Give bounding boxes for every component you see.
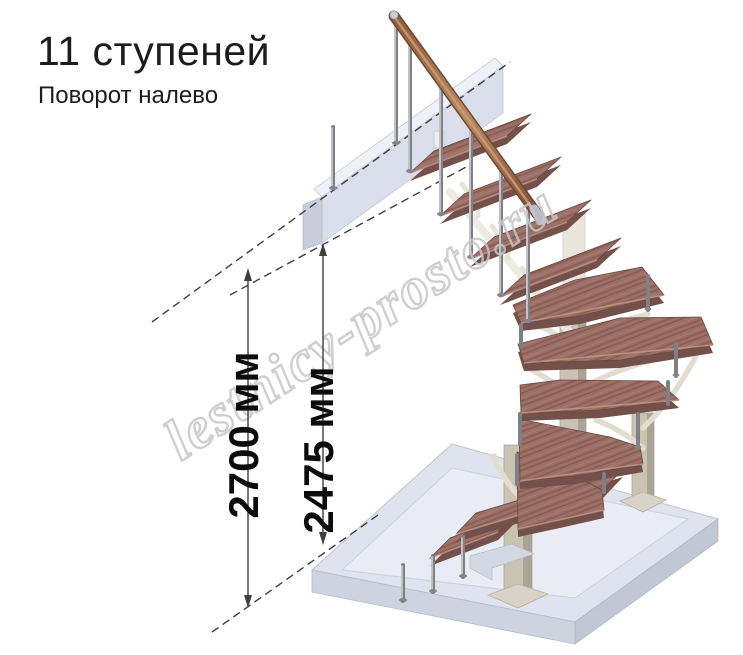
page-title: 11 ступеней — [37, 28, 270, 75]
dimension-2475: 2475 мм — [295, 243, 342, 545]
handrail-top-cap — [390, 11, 398, 19]
watermark: lestnicy-prosto.ru — [153, 171, 569, 472]
dimension-2475-label: 2475 мм — [295, 366, 342, 533]
arrowhead-up — [244, 268, 252, 281]
arrowhead-down — [244, 595, 252, 608]
staircase-diagram-page: lestnicy-prosto.ru 2700 мм 2475 мм 11 ст… — [0, 0, 743, 655]
dimension-2700: 2700 мм — [220, 268, 267, 608]
page-subtitle: Поворот налево — [38, 82, 218, 110]
arrowhead-up — [319, 243, 327, 256]
dimension-2700-label: 2700 мм — [220, 351, 267, 518]
watermark-text: lestnicy-prosto.ru — [153, 171, 569, 472]
